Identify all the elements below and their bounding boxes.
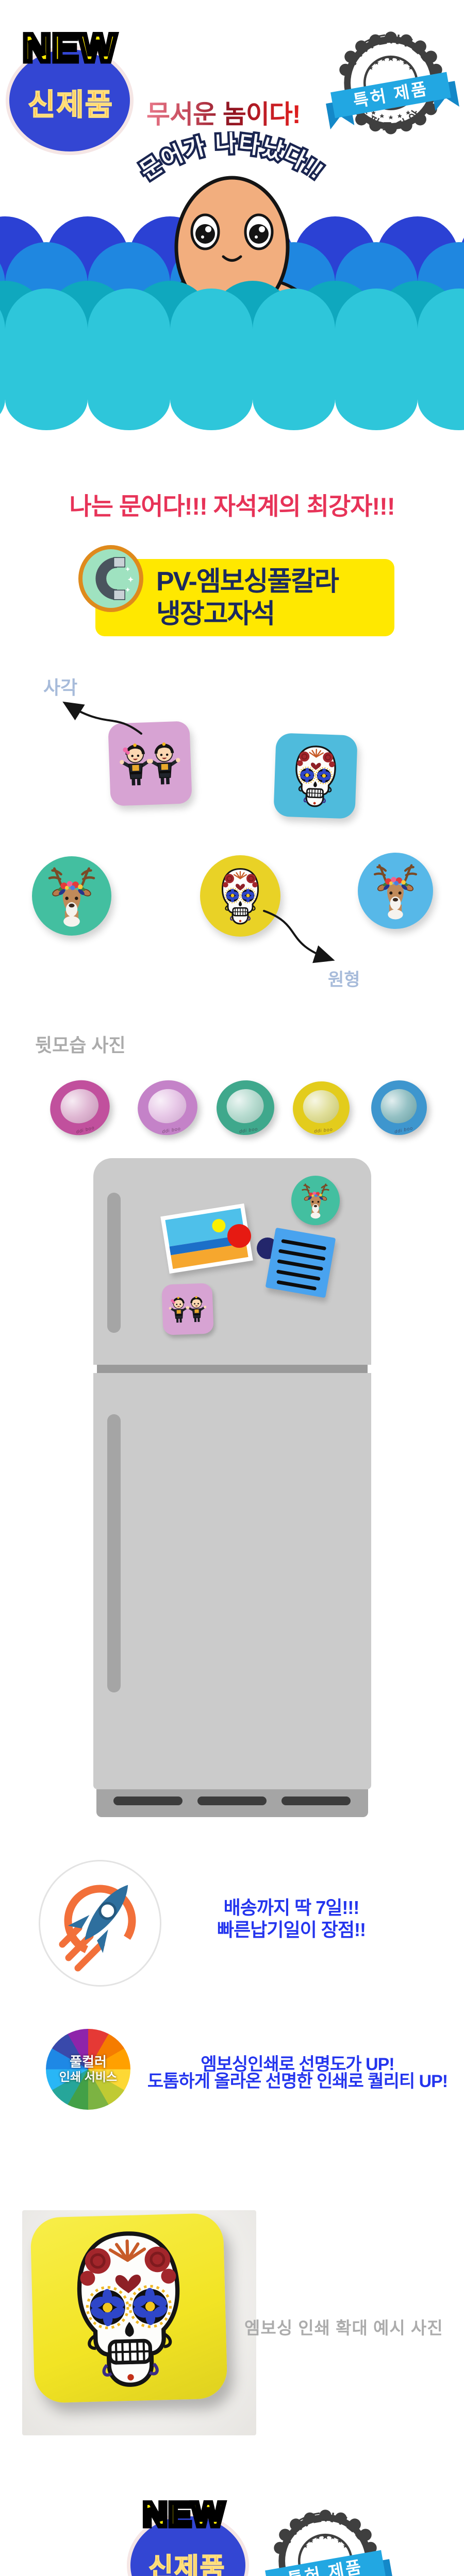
back-magnet: ddi boo bbox=[134, 1076, 202, 1140]
promo-page: PATENTED bbox=[0, 0, 464, 2576]
label-square: 사각 bbox=[43, 673, 77, 700]
brand-text: ddi boo bbox=[142, 1122, 202, 1138]
note-line bbox=[281, 1239, 326, 1250]
rocket-badge bbox=[39, 1860, 161, 1987]
new-product-label: 신제품 bbox=[148, 2546, 226, 2576]
brand-text: ddi boo bbox=[295, 1125, 352, 1136]
deer-art bbox=[43, 865, 101, 927]
police-couple-art bbox=[118, 738, 182, 789]
round-magnet-blue bbox=[358, 853, 433, 929]
magnet-back-inner bbox=[378, 1086, 420, 1127]
deer-art bbox=[369, 861, 422, 920]
arrow-icon bbox=[264, 911, 331, 959]
back-magnet: ddi boo bbox=[290, 1079, 352, 1138]
spark-icon bbox=[125, 567, 134, 592]
wheel-label-1: 풀컬러 bbox=[70, 2055, 107, 2070]
brand-text: ddi boo bbox=[220, 1124, 277, 1137]
note-line bbox=[276, 1280, 317, 1291]
square-magnet-blue bbox=[273, 733, 358, 819]
title-line-1: PV-엠보싱풀칼라 bbox=[156, 566, 338, 598]
magnet-icon bbox=[88, 555, 134, 602]
magnet-back-inner bbox=[301, 1088, 341, 1125]
back-magnet: ddi boo bbox=[44, 1074, 115, 1142]
example-photo bbox=[22, 2210, 256, 2435]
headline-text: 나는 문어다!!! 자석계의 최강자!!! bbox=[0, 486, 464, 522]
title-line-2: 냉장고자석 bbox=[156, 598, 338, 631]
fridge-vent bbox=[281, 1797, 351, 1805]
fridge-vent bbox=[113, 1797, 183, 1805]
square-magnet-pink bbox=[108, 721, 192, 806]
round-magnet-green bbox=[32, 856, 111, 936]
label-back-photos: 뒷모습 사진 bbox=[35, 1030, 126, 1057]
note-line bbox=[278, 1249, 326, 1261]
new-text: NEW bbox=[23, 26, 117, 71]
back-magnet: ddi boo bbox=[213, 1077, 278, 1139]
new-product-label: 신제품 bbox=[28, 80, 113, 124]
patent-stamp bbox=[321, 27, 461, 148]
note-magnet bbox=[266, 1228, 336, 1298]
round-magnet-yellow bbox=[200, 855, 280, 937]
skull-art bbox=[289, 742, 342, 809]
rocket-icon bbox=[51, 1869, 149, 1977]
back-magnet: ddi boo bbox=[366, 1075, 432, 1140]
fridge-handle-top bbox=[107, 1193, 121, 1333]
magnet-back-inner bbox=[57, 1085, 102, 1127]
scary-text: 무서운 놈이다! bbox=[146, 94, 301, 131]
new-text: NEW bbox=[143, 2495, 225, 2534]
fridge-handle-bottom bbox=[107, 1414, 121, 1692]
wheel-label-2: 인쇄 서비스 bbox=[59, 2070, 117, 2083]
fridge-bottom-door bbox=[93, 1373, 371, 1789]
label-round: 원형 bbox=[328, 965, 360, 991]
fridge-divider bbox=[97, 1365, 368, 1373]
new-badge-top: NEW 신제품 bbox=[9, 29, 131, 154]
brand-text: ddi boo bbox=[56, 1120, 115, 1140]
product-title: PV-엠보싱풀칼라 냉장고자석 bbox=[156, 566, 338, 631]
deer-art bbox=[299, 1182, 333, 1219]
red-circle-magnet bbox=[227, 1224, 251, 1248]
skull-art bbox=[217, 866, 263, 926]
wave-front bbox=[0, 289, 464, 430]
note-line bbox=[276, 1269, 321, 1281]
fridge-police-magnet bbox=[161, 1283, 213, 1335]
octopus-wave-scene bbox=[0, 170, 464, 438]
fridge-deer-magnet bbox=[291, 1176, 340, 1225]
police-couple-art bbox=[168, 1294, 208, 1325]
skull-art bbox=[63, 2221, 195, 2395]
magnet-back-inner bbox=[224, 1087, 266, 1125]
big-skull-magnet bbox=[30, 2213, 227, 2403]
brand-text: ddi boo bbox=[376, 1122, 432, 1138]
note-line bbox=[277, 1259, 323, 1271]
print-line-2: 도톰하게 올라온 선명한 인쇄로 퀄리티 UP! bbox=[117, 2067, 464, 2092]
magnet-badge bbox=[78, 545, 143, 612]
new-badge-bottom: NEW 신제품 bbox=[129, 2497, 247, 2576]
magnet-back-inner bbox=[145, 1086, 189, 1126]
shipping-line-2: 빠른납기일이 장점!! bbox=[170, 1915, 412, 1942]
label-example: 엠보싱 인쇄 확대 예시 사진 bbox=[244, 2314, 443, 2339]
fridge-vent bbox=[197, 1797, 267, 1805]
patent-stamp bbox=[255, 2505, 395, 2576]
